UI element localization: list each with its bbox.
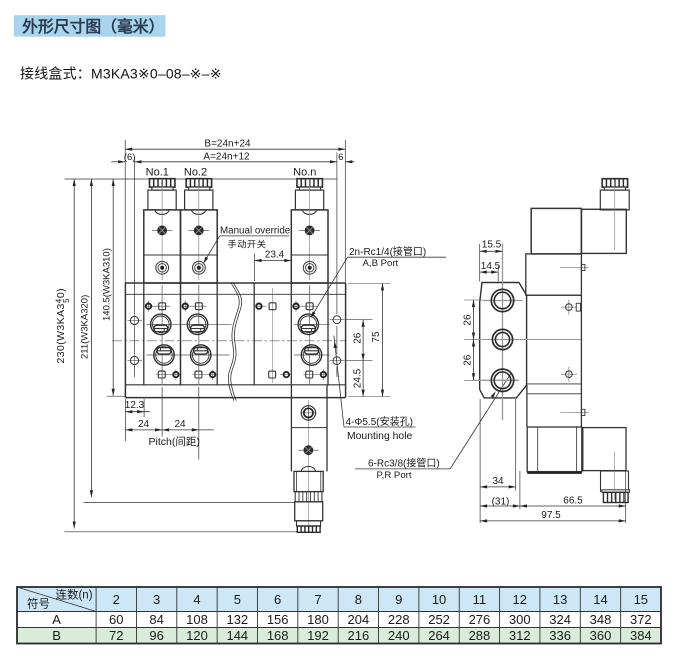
svg-text:228: 228 (388, 612, 410, 627)
svg-text:132: 132 (226, 612, 248, 627)
svg-text:P,R Port: P,R Port (377, 470, 412, 481)
svg-text:连数(n): 连数(n) (55, 588, 92, 602)
svg-text:6: 6 (338, 152, 343, 163)
svg-text:No.2: No.2 (184, 166, 207, 178)
svg-text:14.5: 14.5 (481, 261, 501, 272)
svg-text:204: 204 (348, 612, 370, 627)
svg-text:10: 10 (432, 592, 446, 607)
svg-text:384: 384 (630, 628, 652, 643)
svg-text:4: 4 (193, 592, 200, 607)
svg-text:75: 75 (371, 331, 382, 343)
svg-text:8: 8 (355, 592, 362, 607)
svg-text:312: 312 (509, 628, 531, 643)
svg-text:No.1: No.1 (146, 166, 169, 178)
svg-text:9: 9 (395, 592, 402, 607)
svg-text:7: 7 (314, 592, 321, 607)
svg-text:6: 6 (274, 592, 281, 607)
svg-text:12: 12 (513, 592, 527, 607)
svg-text:Manual override: Manual override (220, 226, 291, 237)
svg-text:24: 24 (138, 419, 150, 430)
svg-text:26: 26 (462, 354, 473, 366)
svg-text:144: 144 (226, 628, 248, 643)
svg-text:26: 26 (462, 314, 473, 326)
svg-text:276: 276 (469, 612, 491, 627)
svg-text:23.4: 23.4 (265, 249, 285, 260)
svg-text:72: 72 (109, 628, 123, 643)
svg-text:Mounting hole: Mounting hole (347, 431, 412, 442)
svg-text:3: 3 (153, 592, 160, 607)
svg-text:手动开关: 手动开关 (228, 238, 267, 249)
svg-text:60: 60 (109, 612, 123, 627)
svg-text:34: 34 (492, 476, 504, 487)
svg-text:B=24n+24: B=24n+24 (204, 138, 251, 149)
svg-text:140.5(W3KA310): 140.5(W3KA310) (101, 248, 112, 321)
svg-text:120: 120 (186, 628, 208, 643)
svg-text:26: 26 (353, 332, 364, 344)
svg-text:108: 108 (186, 612, 208, 627)
svg-text:A: A (52, 612, 61, 627)
svg-text:Pitch(间距): Pitch(间距) (149, 435, 200, 448)
svg-text:24.5: 24.5 (353, 368, 364, 388)
svg-text:4-Φ5.5(安装孔): 4-Φ5.5(安装孔) (346, 415, 413, 428)
svg-text:外形尺寸图（毫米）: 外形尺寸图（毫米） (22, 17, 164, 36)
svg-text:接线盒式：M3KA3※0–08–※–※: 接线盒式：M3KA3※0–08–※–※ (20, 66, 222, 82)
svg-text:14: 14 (593, 592, 607, 607)
svg-text:15: 15 (634, 592, 648, 607)
svg-text:12.3: 12.3 (125, 400, 145, 411)
svg-text:348: 348 (590, 612, 612, 627)
svg-text:230(W3KA3450): 230(W3KA3450) (55, 288, 72, 364)
svg-text:324: 324 (549, 612, 571, 627)
svg-text:No.n: No.n (293, 167, 316, 179)
svg-text:97.5: 97.5 (541, 510, 561, 521)
svg-text:96: 96 (149, 628, 163, 643)
svg-text:288: 288 (469, 628, 491, 643)
svg-text:240: 240 (388, 628, 410, 643)
svg-text:B: B (52, 628, 61, 643)
svg-text:216: 216 (348, 628, 370, 643)
svg-text:11: 11 (473, 592, 487, 607)
svg-text:A,B Port: A,B Port (363, 258, 399, 269)
svg-text:336: 336 (549, 628, 571, 643)
svg-text:6-Rc3/8(接管口): 6-Rc3/8(接管口) (368, 456, 440, 469)
svg-text:211(W3KA320): 211(W3KA320) (80, 295, 91, 359)
svg-text:2: 2 (113, 592, 120, 607)
svg-text:A=24n+12: A=24n+12 (203, 151, 250, 162)
svg-text:156: 156 (267, 612, 289, 627)
svg-text:168: 168 (267, 628, 289, 643)
svg-text:13: 13 (553, 592, 567, 607)
svg-text:372: 372 (630, 612, 652, 627)
svg-text:252: 252 (428, 612, 450, 627)
svg-text:5: 5 (234, 592, 241, 607)
svg-text:66.5: 66.5 (563, 496, 583, 507)
svg-text:符号: 符号 (27, 597, 50, 611)
svg-text:264: 264 (428, 628, 450, 643)
svg-text:300: 300 (509, 612, 531, 627)
svg-text:84: 84 (149, 612, 163, 627)
svg-text:2n-Rc1/4(接管口): 2n-Rc1/4(接管口) (349, 245, 426, 258)
svg-text:192: 192 (307, 628, 329, 643)
svg-text:15.5: 15.5 (482, 240, 502, 251)
svg-text:24: 24 (174, 419, 186, 430)
svg-text:180: 180 (307, 612, 329, 627)
svg-text:360: 360 (590, 628, 612, 643)
svg-text:(6): (6) (124, 152, 136, 163)
